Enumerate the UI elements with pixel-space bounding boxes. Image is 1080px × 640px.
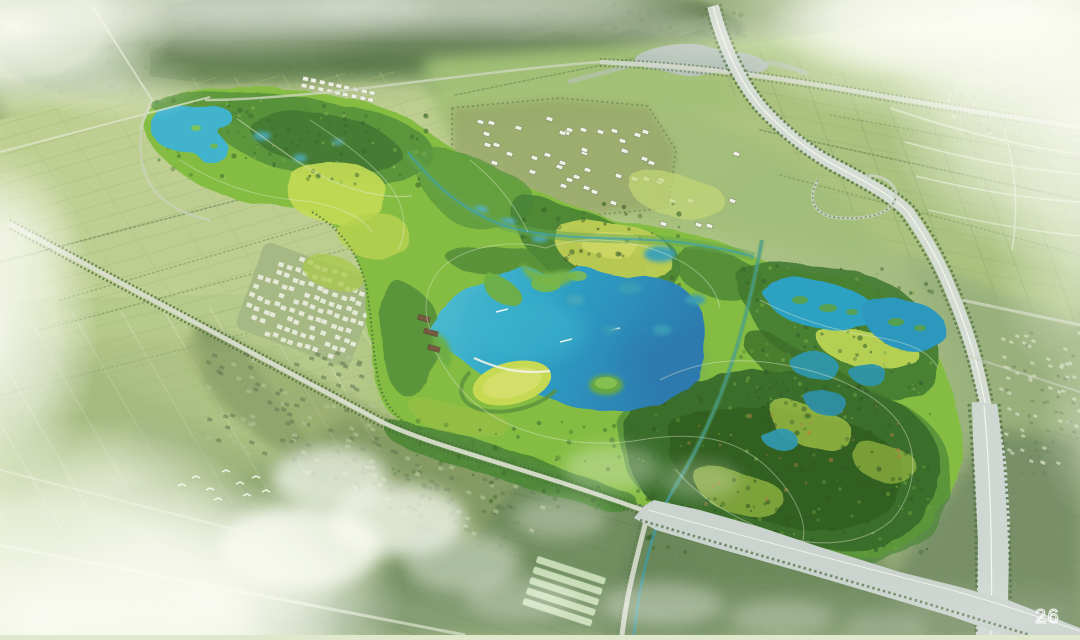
svg-text:26: 26 (1035, 606, 1060, 628)
